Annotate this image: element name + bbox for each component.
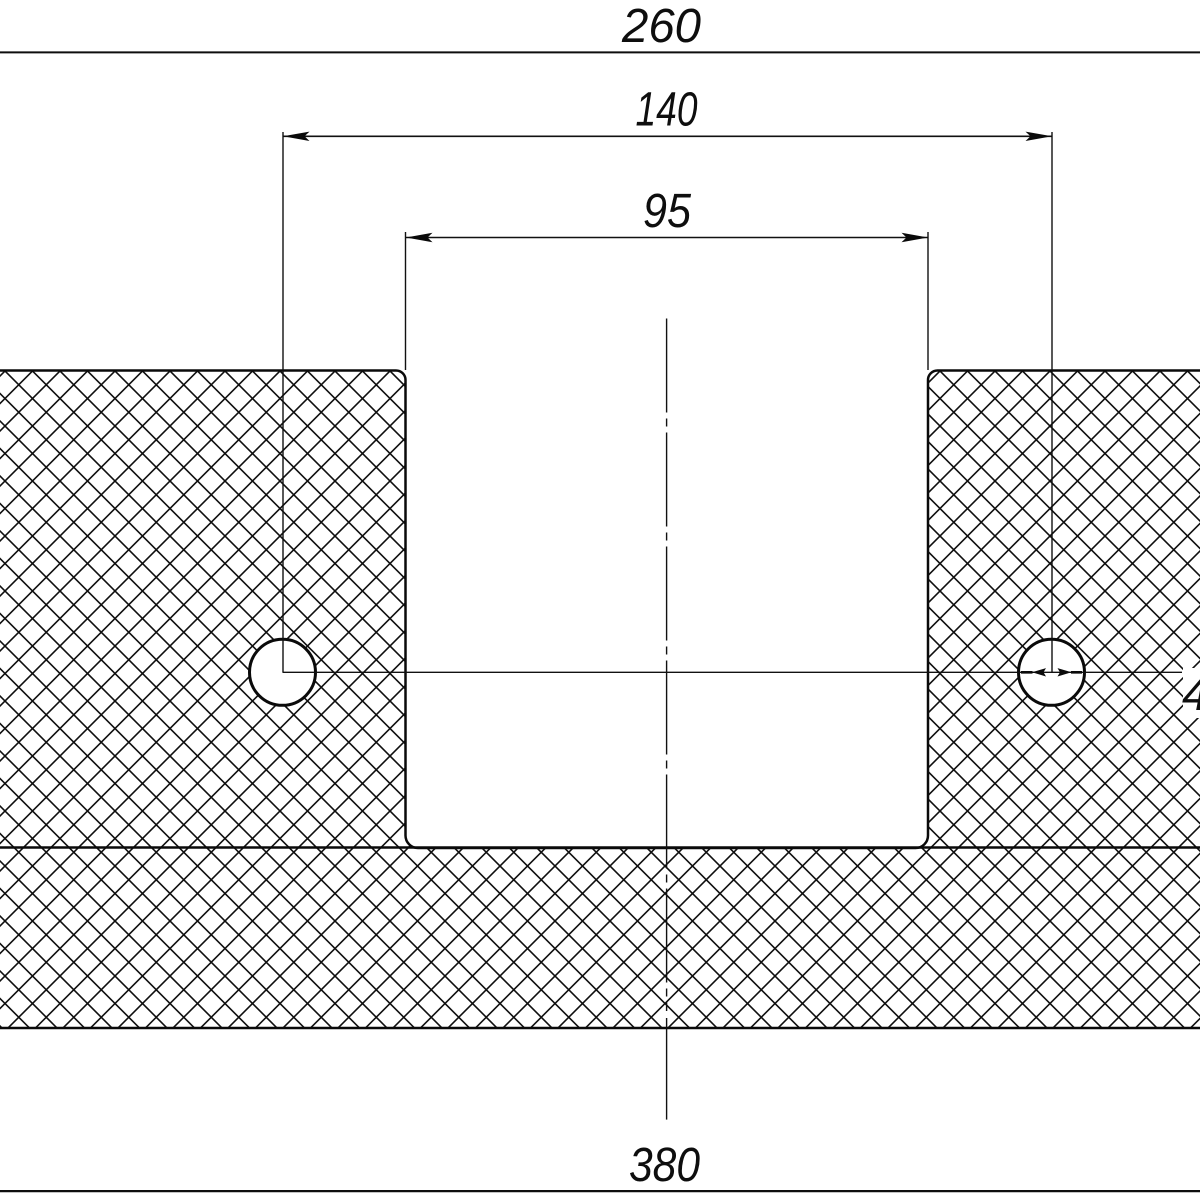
svg-text:95: 95 [643, 185, 691, 238]
svg-text:140: 140 [636, 84, 698, 137]
svg-text:4: 4 [1182, 668, 1200, 721]
svg-text:380: 380 [629, 1139, 700, 1192]
svg-text:260: 260 [621, 0, 701, 53]
